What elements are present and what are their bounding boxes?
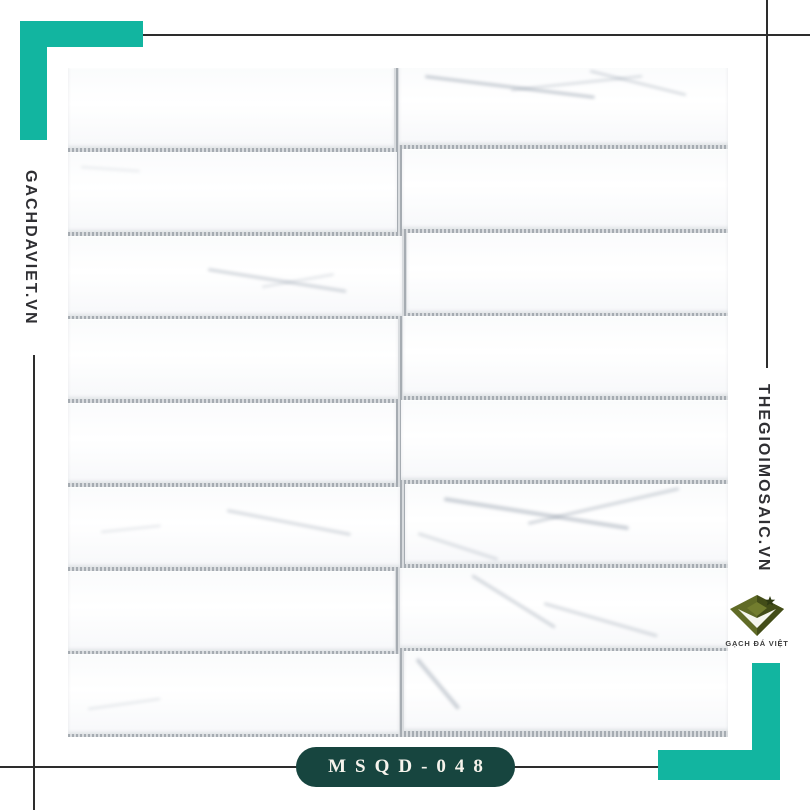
frame-line-right xyxy=(766,0,768,368)
corner-accent-bar xyxy=(752,663,780,780)
marble-vein xyxy=(227,509,351,536)
marble-vein xyxy=(527,488,679,526)
marble-vein xyxy=(417,532,498,561)
brand-logo: GẠCH ĐÁ VIỆT xyxy=(722,592,792,648)
corner-accent-bar xyxy=(20,21,47,140)
frame-line-top xyxy=(143,34,810,36)
marble-tile-r8c2 xyxy=(404,651,728,731)
marble-tile-r7c2 xyxy=(400,568,728,648)
marble-tile-r3c1 xyxy=(68,236,402,316)
product-code-text: MSQD-048 xyxy=(319,756,492,778)
marble-vein xyxy=(425,75,595,99)
marble-tile-r2c1 xyxy=(68,152,397,232)
marble-tile-r3c2 xyxy=(407,233,728,313)
marble-tile-r6c2 xyxy=(405,484,728,564)
marble-tile-r4c2 xyxy=(403,316,728,396)
marble-tile-r1c1 xyxy=(68,68,394,148)
marble-vein xyxy=(208,268,347,293)
watermark-right: THEGIOIMOSAIC.VN xyxy=(754,384,772,572)
marble-tile-r4c1 xyxy=(68,319,398,399)
marble-tile-r8c1 xyxy=(68,654,399,734)
marble-vein xyxy=(415,658,460,710)
marble-vein xyxy=(81,166,140,172)
marble-tile-r5c1 xyxy=(68,403,396,483)
marble-tile-r1c2 xyxy=(399,68,728,145)
brand-logo-caption: GẠCH ĐÁ VIỆT xyxy=(722,639,792,648)
marble-vein xyxy=(88,698,160,710)
product-image-canvas: GACHDAVIET.VN THEGIOIMOSAIC.VN MSQD-048 … xyxy=(0,0,810,810)
mosaic-photo xyxy=(68,68,728,737)
marble-vein xyxy=(101,525,161,533)
watermark-left: GACHDAVIET.VN xyxy=(21,170,39,326)
marble-vein xyxy=(544,602,658,637)
marble-vein xyxy=(443,497,629,530)
marble-tile-r6c1 xyxy=(68,487,400,567)
frame-line-left xyxy=(33,355,35,810)
marble-tile-r2c2 xyxy=(402,149,728,229)
marble-vein xyxy=(590,70,686,96)
marble-tile-r5c2 xyxy=(401,400,728,480)
gem-diamond-icon xyxy=(727,592,787,638)
product-code-badge: MSQD-048 xyxy=(296,747,515,787)
marble-tile-r7c1 xyxy=(68,571,395,651)
